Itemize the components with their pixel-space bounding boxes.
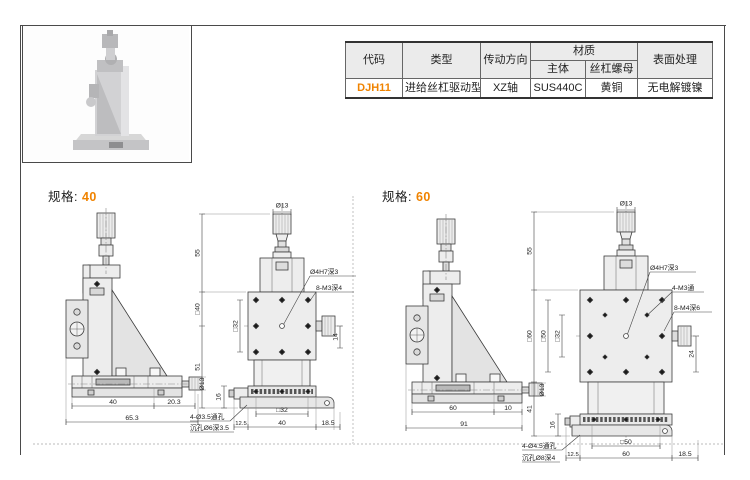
dim-bottom-grid: □50 xyxy=(620,439,632,446)
gusset-bracket xyxy=(452,296,507,382)
cell-type: 进给丝杠驱动型 xyxy=(403,78,481,98)
product-code-link[interactable]: DJH11 xyxy=(357,82,391,94)
spec40-front-drawing: Ø13 55 □40 51 16 □32 14 Ø4H7深3 8-M3深4 4-… xyxy=(190,200,358,444)
cell-surface: 无电解镀镍 xyxy=(638,78,713,98)
base-stage xyxy=(565,414,672,436)
product-photo-box xyxy=(22,25,192,163)
dim-height-lower: 41 xyxy=(527,405,534,413)
spec-table: 代码 类型 传动方向 材质 表面处理 主体 丝杠螺母 DJH11 进给丝杠驱动型… xyxy=(345,41,713,99)
dim-rail-height: 16 xyxy=(550,421,557,429)
dim-knob-offset: 24 xyxy=(689,350,696,358)
dim-total-width: 91 xyxy=(460,421,468,428)
dim-knob-dia: Ø13 xyxy=(620,201,633,208)
spec60-title-label: 规格: xyxy=(382,190,412,204)
spec40-side-shapes xyxy=(66,213,202,397)
dim-base-width: 60 xyxy=(449,405,457,412)
cell-material-body: SUS440C xyxy=(531,78,586,98)
dim-rail-height: 16 xyxy=(216,393,223,401)
product-photo xyxy=(23,26,189,160)
dim-step-width: 20.3 xyxy=(167,399,180,406)
spec40-title-label: 规格: xyxy=(48,190,78,204)
dim-height-top: 55 xyxy=(195,249,202,257)
spec40-side-drawing: 40 20.3 65.3 Ø13 xyxy=(38,204,206,441)
dim-height-lower: 51 xyxy=(195,363,202,371)
callout-center-hole: Ø4H7深3 xyxy=(310,267,339,276)
note-through-holes: 4-Ø3.5通孔 xyxy=(190,412,225,421)
side-knob xyxy=(316,316,335,336)
spec60-title-value: 60 xyxy=(416,190,431,204)
dim-bottom-grid: □32 xyxy=(276,407,288,414)
catalog-page: 代码 类型 传动方向 材质 表面处理 主体 丝杠螺母 DJH11 进给丝杠驱动型… xyxy=(0,0,750,480)
spec40-title: 规格: 40 xyxy=(48,186,97,205)
note-through-holes: 4-Ø4.5通孔 xyxy=(522,441,557,450)
dim-bottom-mid: 60 xyxy=(622,451,630,458)
dim-bolt-grid: □32 xyxy=(233,320,240,332)
spec40-title-value: 40 xyxy=(82,190,97,204)
dim-bottom-left: 12.5 xyxy=(567,452,579,458)
center-hole xyxy=(624,334,629,339)
col-header-direction: 传动方向 xyxy=(481,42,531,78)
cell-material-nut: 黄铜 xyxy=(586,78,638,98)
dim-bottom-right: 18.5 xyxy=(321,420,334,427)
spec40-front-shapes xyxy=(229,214,335,408)
dim-plate-size: □40 xyxy=(195,303,202,315)
gusset-bracket xyxy=(112,290,167,376)
dim-total-width: 65.3 xyxy=(125,415,138,422)
callout-corner-holes: 8-M4深6 xyxy=(674,303,700,312)
dim-bottom-right: 18.5 xyxy=(678,451,691,458)
micrometer-head xyxy=(273,214,291,258)
dim-knob-offset: 14 xyxy=(333,333,340,341)
spec60-front-drawing: Ø13 55 □60 41 □50 □32 16 24 Ø4H7深3 4-M3通… xyxy=(522,198,722,470)
dim-height-top: 55 xyxy=(527,247,534,255)
spec60-front-shapes xyxy=(565,212,691,436)
dim-base-width: 40 xyxy=(109,399,117,406)
dim-outer-grid: □50 xyxy=(541,330,548,342)
callout-corner-holes: 8-M3深4 xyxy=(316,283,342,292)
cell-direction: XZ轴 xyxy=(481,78,531,98)
col-header-material: 材质 xyxy=(531,42,638,60)
callout-center-hole: Ø4H7深3 xyxy=(650,263,679,272)
dim-plate-size: □60 xyxy=(527,330,534,342)
callout-through-holes: 4-M3通 xyxy=(672,283,694,292)
lower-column xyxy=(254,360,310,386)
col-header-type: 类型 xyxy=(403,42,481,78)
note-counterbore: 沉孔Ø6深3.5 xyxy=(190,423,229,432)
table-row: DJH11 进给丝杠驱动型 XZ轴 SUS440C 黄铜 无电解镀镍 xyxy=(346,78,713,98)
dim-knob-dia: Ø13 xyxy=(276,203,289,210)
page-border-left xyxy=(20,25,21,455)
base-stage xyxy=(72,376,202,397)
page-border-right xyxy=(724,25,725,455)
micrometer-head xyxy=(617,212,635,256)
note-counterbore: 沉孔Ø8深4 xyxy=(522,453,555,462)
spec60-title: 规格: 60 xyxy=(382,186,431,205)
dim-bottom-mid: 40 xyxy=(278,420,286,427)
dim-inner-grid: □32 xyxy=(555,330,562,342)
col-header-code: 代码 xyxy=(346,42,403,78)
base-stage xyxy=(229,386,334,408)
lower-column xyxy=(588,382,664,414)
col-header-surface: 表面处理 xyxy=(638,42,713,78)
col-header-material-nut: 丝杠螺母 xyxy=(586,60,638,78)
side-knob xyxy=(672,326,691,346)
dim-bottom-left: 12.5 xyxy=(235,421,247,427)
col-header-material-body: 主体 xyxy=(531,60,586,78)
dim-step-width: 10 xyxy=(504,405,512,412)
